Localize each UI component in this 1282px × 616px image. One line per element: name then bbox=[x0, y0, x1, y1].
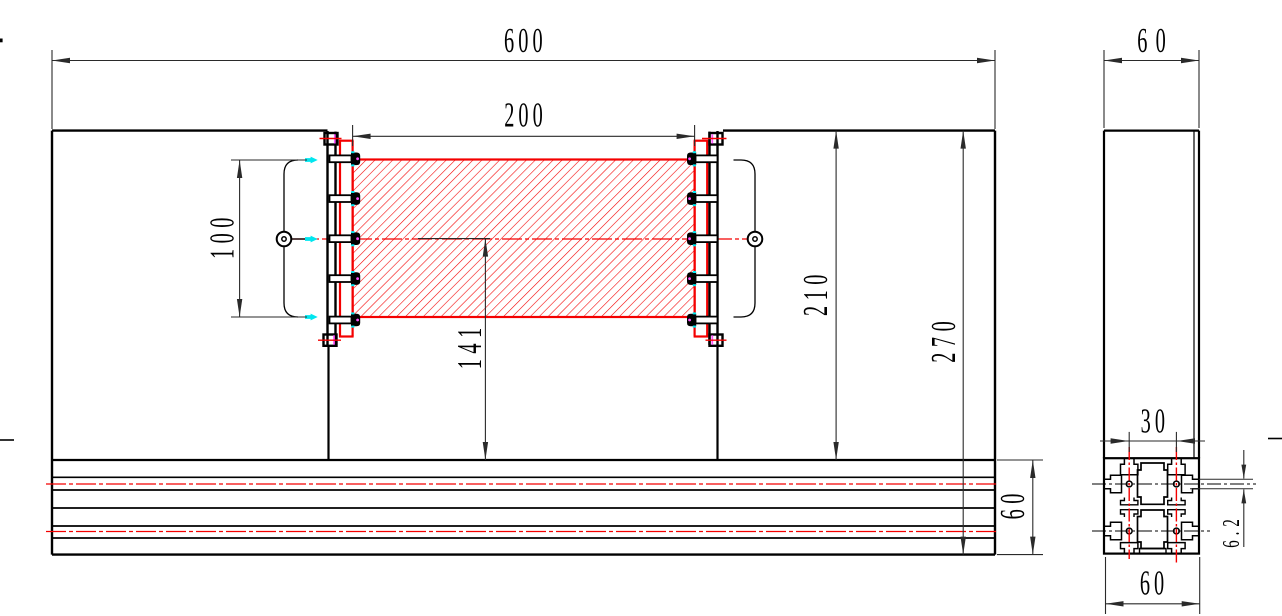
svg-text:60: 60 bbox=[1140, 565, 1168, 603]
svg-text:141: 141 bbox=[452, 322, 490, 369]
svg-text:200: 200 bbox=[504, 97, 547, 135]
svg-text:600: 600 bbox=[504, 23, 547, 61]
svg-text:6.2: 6.2 bbox=[1219, 514, 1245, 547]
svg-text:60: 60 bbox=[1137, 23, 1174, 61]
svg-text:60: 60 bbox=[995, 488, 1033, 519]
svg-text:270: 270 bbox=[926, 316, 964, 363]
svg-text:210: 210 bbox=[798, 269, 836, 316]
svg-text:100: 100 bbox=[204, 212, 242, 259]
svg-text:30: 30 bbox=[1141, 403, 1169, 441]
